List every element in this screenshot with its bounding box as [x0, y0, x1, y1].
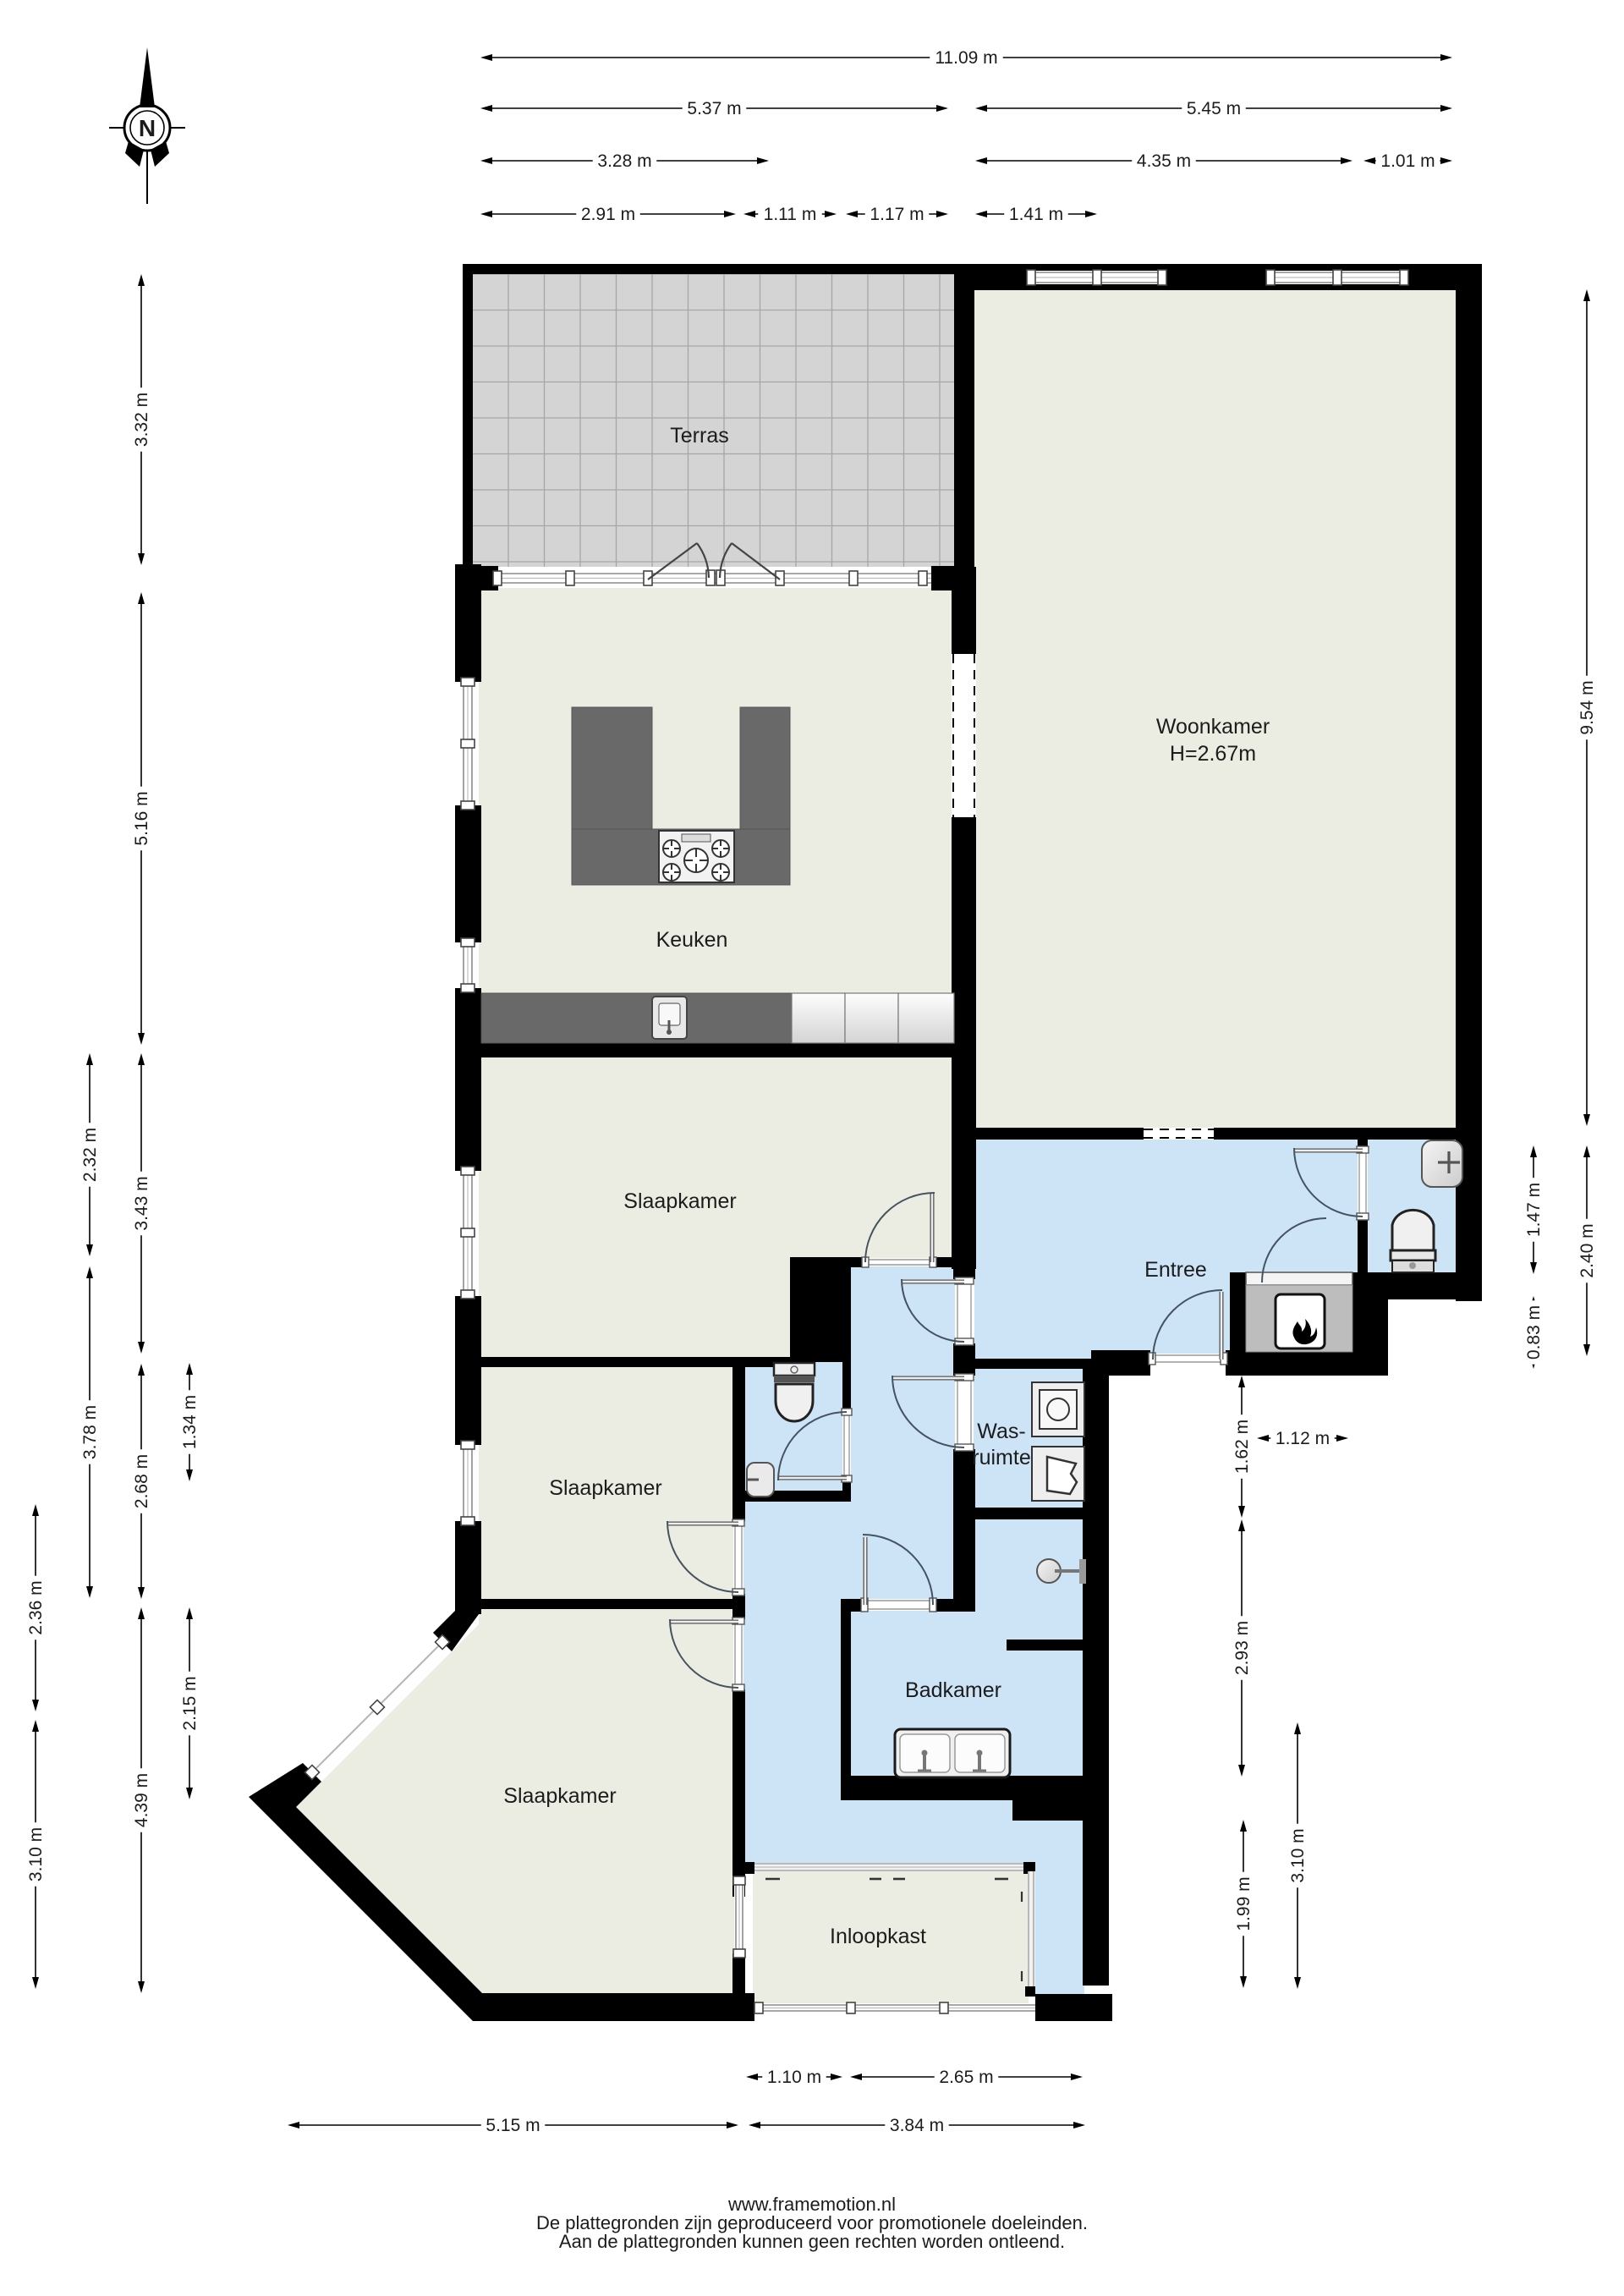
svg-text:Entree: Entree — [1144, 1258, 1207, 1282]
svg-text:5.45 m: 5.45 m — [1187, 99, 1241, 118]
svg-text:3.84 m: 3.84 m — [890, 2116, 944, 2135]
svg-text:N: N — [139, 115, 156, 141]
svg-text:2.36 m: 2.36 m — [26, 1580, 46, 1634]
svg-text:4.39 m: 4.39 m — [132, 1773, 151, 1827]
svg-text:1.47 m: 1.47 m — [1524, 1183, 1544, 1237]
svg-text:2.93 m: 2.93 m — [1232, 1621, 1252, 1675]
svg-text:ruimte: ruimte — [972, 1446, 1030, 1469]
svg-text:Slaapkamer: Slaapkamer — [623, 1189, 736, 1213]
svg-text:5.15 m: 5.15 m — [486, 2116, 540, 2135]
svg-text:2.91 m: 2.91 m — [581, 205, 635, 224]
svg-text:1.12 m: 1.12 m — [1276, 1429, 1330, 1448]
svg-text:1.99 m: 1.99 m — [1234, 1876, 1254, 1931]
svg-text:2.15 m: 2.15 m — [180, 1676, 200, 1730]
svg-text:Slaapkamer: Slaapkamer — [503, 1784, 616, 1808]
svg-text:0.83 m: 0.83 m — [1524, 1305, 1544, 1359]
svg-text:5.16 m: 5.16 m — [132, 791, 151, 845]
svg-text:Was-: Was- — [977, 1420, 1025, 1443]
svg-text:11.09 m: 11.09 m — [935, 48, 997, 68]
svg-text:Slaapkamer: Slaapkamer — [549, 1476, 661, 1500]
svg-text:1.41 m: 1.41 m — [1009, 205, 1063, 224]
svg-text:Badkamer: Badkamer — [905, 1678, 1001, 1702]
svg-text:3.10 m: 3.10 m — [26, 1827, 46, 1881]
svg-text:3.78 m: 3.78 m — [80, 1405, 100, 1459]
svg-text:1.10 m: 1.10 m — [767, 2068, 821, 2087]
svg-text:2.68 m: 2.68 m — [132, 1454, 151, 1508]
svg-text:3.28 m: 3.28 m — [597, 151, 651, 171]
svg-text:3.43 m: 3.43 m — [132, 1176, 151, 1230]
svg-text:9.54 m: 9.54 m — [1577, 680, 1597, 734]
svg-text:2.40 m: 2.40 m — [1577, 1223, 1597, 1277]
svg-text:4.35 m: 4.35 m — [1137, 151, 1191, 171]
svg-text:Keuken: Keuken — [656, 928, 728, 952]
svg-text:2.65 m: 2.65 m — [939, 2068, 993, 2087]
svg-text:3.10 m: 3.10 m — [1288, 1828, 1308, 1882]
svg-text:H=2.67m: H=2.67m — [1170, 742, 1256, 766]
svg-text:Woonkamer: Woonkamer — [1156, 715, 1270, 739]
svg-text:Terras: Terras — [670, 424, 728, 448]
svg-text:1.17 m: 1.17 m — [870, 205, 924, 224]
svg-text:3.32 m: 3.32 m — [132, 393, 151, 447]
svg-text:2.32 m: 2.32 m — [80, 1128, 100, 1182]
svg-text:1.34 m: 1.34 m — [180, 1395, 200, 1449]
svg-text:5.37 m: 5.37 m — [687, 99, 741, 118]
svg-text:1.11 m: 1.11 m — [764, 205, 817, 224]
svg-text:Inloopkast: Inloopkast — [830, 1925, 926, 1948]
svg-text:Aan de plattegronden kunnen ge: Aan de plattegronden kunnen geen rechten… — [559, 2231, 1065, 2252]
svg-text:1.62 m: 1.62 m — [1232, 1420, 1252, 1474]
svg-text:1.01 m: 1.01 m — [1380, 151, 1435, 171]
